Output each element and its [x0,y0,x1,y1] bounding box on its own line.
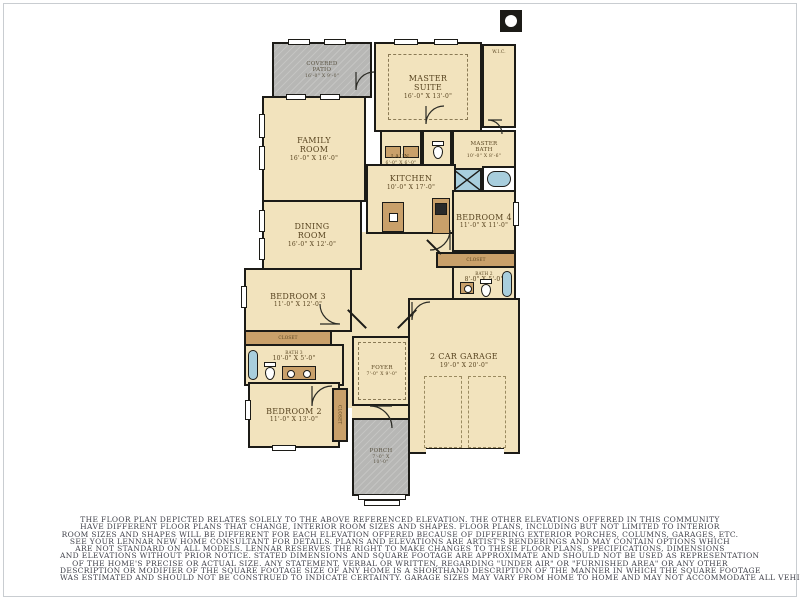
room-family-room: FAMILY ROOM16'-0" X 16'-0" [262,96,366,202]
sink-icon [303,370,311,378]
room-label: CLOSET [466,257,485,262]
bathtub-icon [502,271,512,297]
floorplan-page: COVERED PATIO16'-0" X 9'-0" PORCH7'-0" X… [0,0,800,600]
room-label: BEDROOM 411'-0" X 11'-0" [456,213,512,230]
room-foyer: FOYER7'-0" X 9'-0" [352,336,412,406]
closet-bedroom-2: CLOSET [332,388,348,442]
room-label: BATH 310'-0" X 5'-0" [273,350,316,362]
room-label: FAMILY ROOM16'-0" X 16'-0" [290,136,338,162]
front-door-arc [368,404,394,430]
window [259,146,265,170]
double-vanity [282,366,316,380]
room-label: 2 CAR GARAGE19'-0" X 20'-0" [430,352,498,369]
garage-bay-outline [424,376,462,448]
window [241,286,247,308]
room-bedroom-4: BEDROOM 411'-0" X 11'-0" [452,190,516,252]
window [324,39,346,45]
compass-icon [500,10,522,32]
floor-plan: COVERED PATIO16'-0" X 9'-0" PORCH7'-0" X… [228,6,538,506]
room-walk-in-closet: W.I.C. [482,44,516,128]
room-dining-room: DINING ROOM16'-0" X 12'-0" [262,200,362,270]
garage-bay-outline [468,376,506,448]
window [272,445,296,451]
window [434,39,458,45]
sink-icon [287,370,295,378]
porch-step [364,500,400,506]
range-icon [435,203,447,215]
window [259,114,265,138]
shower-icon [452,168,482,192]
toilet-icon [264,362,276,381]
room-label: CLOSET [337,405,342,424]
room-label: FOYER7'-0" X 9'-0" [366,365,397,377]
window [320,94,340,100]
room-bath-2: BATH 28'-0" X 5'-0" [452,266,516,300]
room-label: W.I.C. [492,49,505,54]
room-kitchen: KITCHEN10'-0" X 17'-0" [366,164,456,234]
window [288,39,310,45]
room-master-bath: MASTER BATH10'-0" X 8'-6" [452,130,516,170]
room-label: DINING ROOM16'-0" X 12'-0" [288,222,336,248]
door-arc [318,302,342,326]
door-arc [424,104,446,126]
garage-door-opening [426,448,504,455]
garage-entry-door-arc [410,300,432,322]
room-label: BEDROOM 211'-0" X 13'-0" [266,407,322,424]
door-arc [310,384,334,408]
kitchen-island [382,202,404,232]
window [394,39,418,45]
shower-x-glyph [454,170,480,190]
door-arc [486,118,504,136]
legal-disclaimer: THE FLOOR PLAN DEPICTED RELATES SOLELY T… [60,516,740,582]
bathtub-icon [482,166,516,192]
window [286,94,306,100]
shower-tub-icon [248,350,258,380]
island-sink-icon [389,213,398,222]
room-label: CLOSET [278,335,297,340]
window [259,238,265,260]
toilet-icon [480,279,492,298]
vanity-sink-icon [460,282,474,294]
room-label: PORCH7'-0" X 10'-0" [370,448,393,465]
room-label: COVERED PATIO16'-0" X 9'-0" [305,61,339,80]
window [513,202,519,226]
door-arc [428,228,452,252]
window [259,210,265,232]
window [245,400,251,420]
room-label: MASTER SUITE16'-0" X 13'-0" [404,74,452,100]
room-label: MASTER BATH10'-0" X 8'-6" [467,141,501,160]
room-label: KITCHEN10'-0" X 17'-0" [387,174,435,191]
disclaimer-line: WAS ESTIMATED AND SHOULD NOT BE CONSTRUE… [60,574,740,581]
door-arc [354,70,376,92]
toilet-icon [432,141,444,160]
room-bath-3: BATH 310'-0" X 5'-0" [244,344,344,386]
